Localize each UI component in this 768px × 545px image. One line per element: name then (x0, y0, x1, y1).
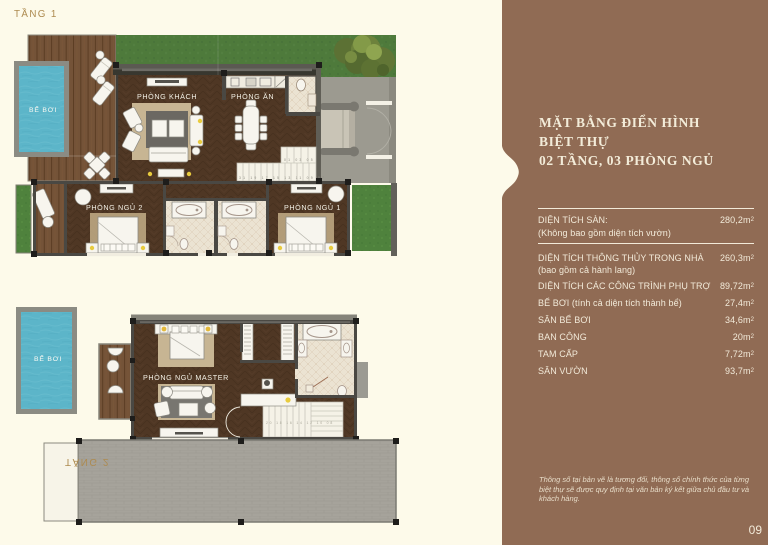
svg-text:PHÒNG NGỦ 1: PHÒNG NGỦ 1 (284, 203, 341, 212)
svg-text:PHÒNG NGỦ MASTER: PHÒNG NGỦ MASTER (143, 373, 229, 382)
svg-text:31 19 17 15 13 11 09 07: 31 19 17 15 13 11 09 07 (239, 176, 326, 180)
svg-text:PHÒNG NGỦ 2: PHÒNG NGỦ 2 (86, 203, 143, 212)
svg-text:BỂ BƠI: BỂ BƠI (34, 354, 62, 363)
svg-text:PHÒNG KHÁCH: PHÒNG KHÁCH (137, 92, 197, 101)
svg-text:01 03 05: 01 03 05 (284, 158, 315, 162)
svg-text:BỂ BƠI: BỂ BƠI (29, 105, 57, 114)
svg-text:TẦNG 1: TẦNG 1 (14, 9, 58, 20)
svg-text:20 18 16 14 12 10 08: 20 18 16 14 12 10 08 (266, 421, 334, 425)
